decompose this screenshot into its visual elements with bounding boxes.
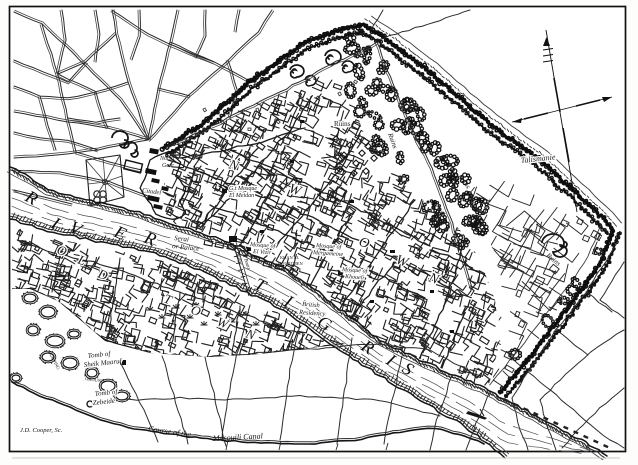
svg-text:HOSTAGE: HOSTAGE	[281, 267, 301, 272]
svg-text:Gate: Gate	[162, 163, 174, 169]
svg-text:British: British	[302, 301, 320, 309]
svg-text:North: North	[159, 156, 174, 162]
svg-text:G.t Mosque: G.t Mosque	[229, 186, 257, 192]
svg-text:J.D. Cooper, Sc.: J.D. Cooper, Sc.	[20, 427, 63, 434]
svg-text:KHAN EL: KHAN EL	[280, 255, 299, 260]
svg-text:Ruins: Ruins	[334, 120, 351, 128]
svg-text:HOURTMEN: HOURTMEN	[278, 261, 303, 266]
svg-text:El Meidan: El Meidan	[228, 193, 254, 199]
